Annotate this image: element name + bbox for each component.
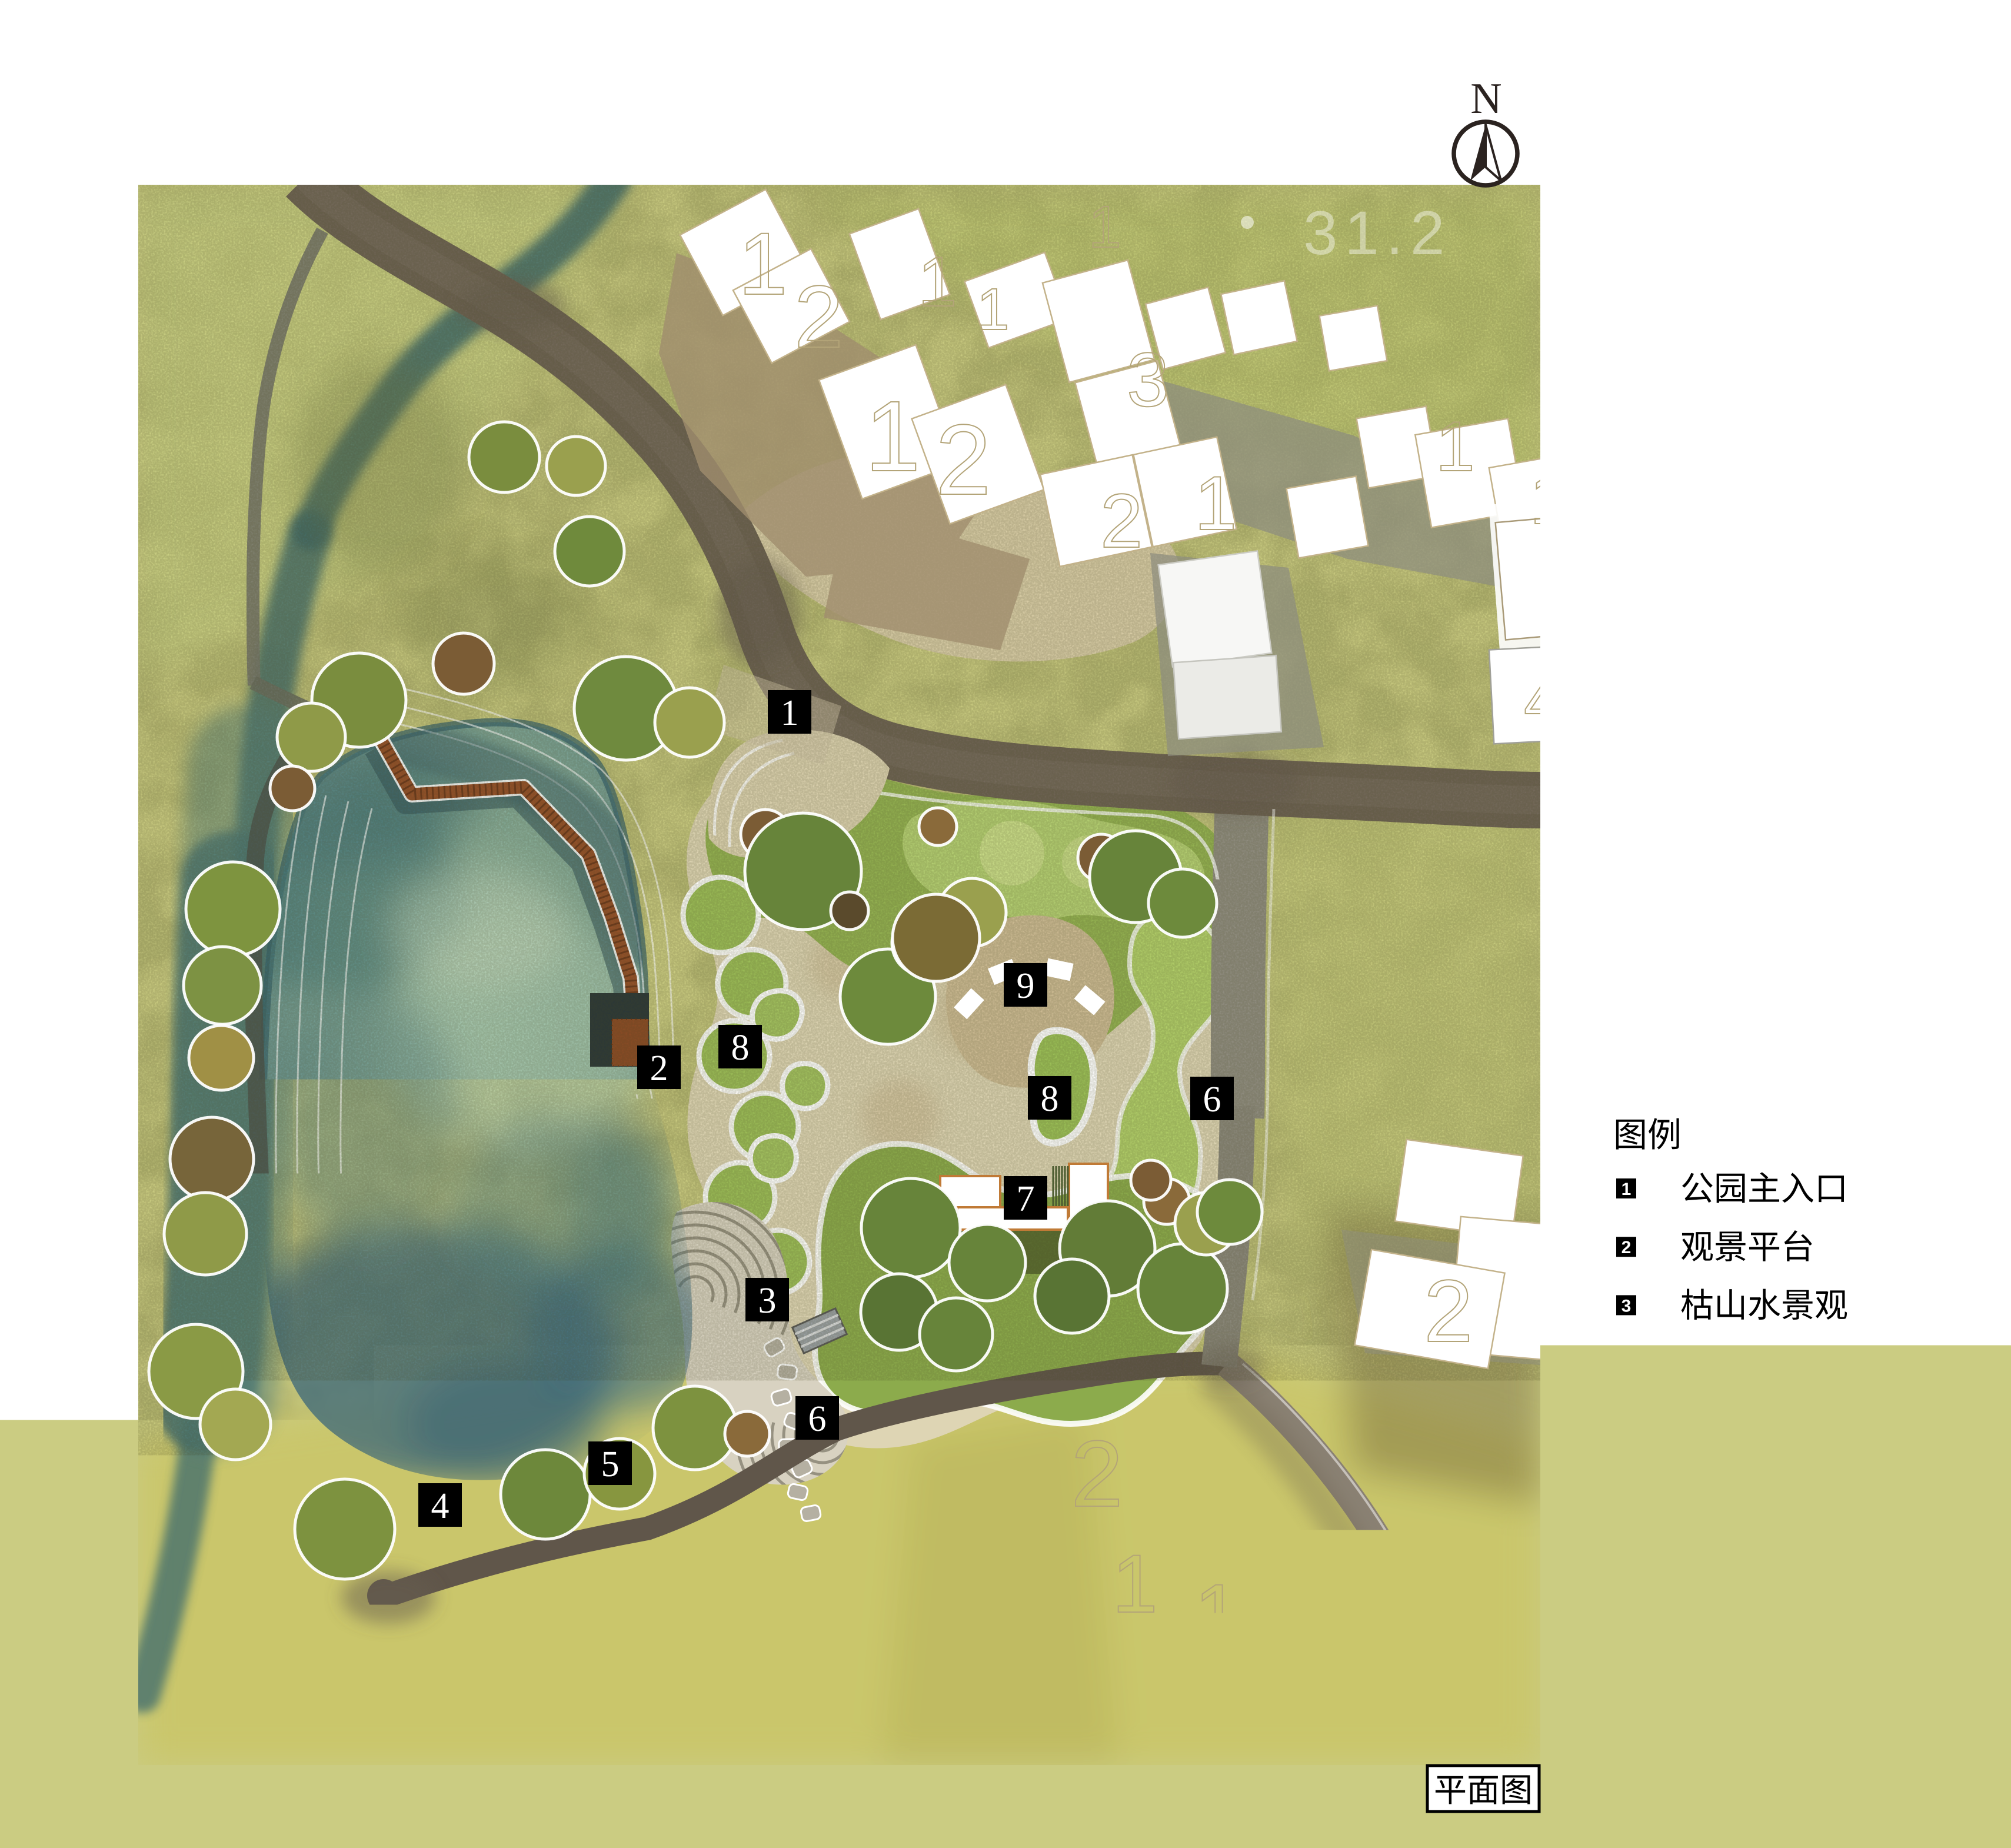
svg-text:1: 1: [1194, 1567, 1240, 1659]
svg-text:2: 2: [1077, 1668, 1129, 1773]
svg-text:2: 2: [935, 404, 991, 516]
svg-text:1: 1: [1088, 194, 1121, 260]
svg-text:1: 1: [738, 214, 787, 313]
svg-text:2: 2: [794, 267, 843, 366]
svg-text:2: 2: [1071, 1421, 1123, 1526]
svg-text:6: 6: [808, 1399, 827, 1439]
svg-text:1: 1: [1622, 1180, 1632, 1199]
svg-text:2: 2: [1100, 478, 1143, 564]
svg-text:8: 8: [731, 1028, 750, 1068]
svg-text:1: 1: [1436, 407, 1475, 486]
svg-text:4: 4: [431, 1486, 450, 1526]
svg-text:7: 7: [1622, 1530, 1632, 1549]
svg-text:1: 1: [1112, 1537, 1158, 1630]
svg-text:9: 9: [1017, 966, 1035, 1006]
svg-text:2: 2: [1622, 1238, 1632, 1257]
svg-text:5: 5: [1622, 1413, 1632, 1433]
svg-text:6: 6: [1203, 1080, 1221, 1120]
svg-text:2: 2: [1424, 1261, 1473, 1360]
svg-text:1: 1: [918, 242, 957, 321]
svg-text:N: N: [1470, 75, 1501, 123]
svg-text:3: 3: [758, 1281, 777, 1321]
svg-text:9: 9: [1622, 1647, 1632, 1666]
svg-text:7: 7: [1017, 1179, 1035, 1219]
svg-text:5: 5: [601, 1444, 620, 1484]
svg-text:4: 4: [1622, 1355, 1632, 1374]
svg-text:1: 1: [865, 381, 921, 492]
svg-text:2: 2: [650, 1048, 668, 1088]
svg-text:1: 1: [977, 277, 1010, 342]
svg-text:8: 8: [1622, 1588, 1632, 1607]
svg-text:3: 3: [1127, 337, 1169, 422]
svg-text:3: 3: [1622, 1296, 1632, 1316]
svg-text:31.2: 31.2: [1303, 199, 1451, 268]
svg-text:8: 8: [1041, 1079, 1059, 1119]
svg-text:6: 6: [1622, 1471, 1632, 1491]
svg-text:1: 1: [781, 693, 799, 733]
svg-text:1: 1: [1194, 460, 1237, 546]
